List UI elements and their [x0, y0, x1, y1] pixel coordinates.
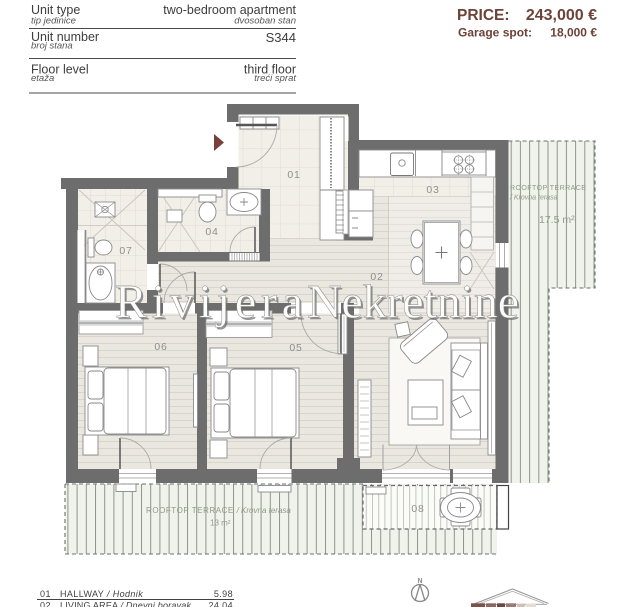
svg-text:Rivijera: Rivijera	[115, 276, 303, 329]
svg-text:02: 02	[40, 601, 51, 607]
svg-text:01: 01	[287, 169, 300, 181]
svg-text:06: 06	[154, 341, 167, 353]
svg-text:PRICE:: PRICE:	[457, 7, 510, 24]
svg-text:13 m²: 13 m²	[210, 519, 231, 528]
svg-text:ROOFTOP TERRACE / Krovna teras: ROOFTOP TERRACE / Krovna terasa	[146, 506, 291, 515]
svg-text:treći sprat: treći sprat	[254, 73, 296, 84]
svg-text:ROOFTOP TERRACE: ROOFTOP TERRACE	[510, 185, 586, 192]
svg-text:N: N	[417, 578, 422, 585]
svg-text:broj stana: broj stana	[31, 41, 73, 52]
svg-text:08: 08	[411, 503, 424, 515]
svg-text:243,000 €: 243,000 €	[526, 7, 597, 24]
svg-text:5.98: 5.98	[214, 589, 233, 599]
svg-text:17.5 m²: 17.5 m²	[539, 214, 575, 226]
svg-text:24.04: 24.04	[208, 601, 233, 607]
svg-text:etaža: etaža	[31, 73, 54, 84]
svg-text:dvosoban stan: dvosoban stan	[234, 16, 296, 27]
svg-text:S344: S344	[266, 30, 296, 45]
svg-text:tip jedinice: tip jedinice	[31, 16, 76, 27]
svg-text:/ Krovna terasa: / Krovna terasa	[509, 195, 558, 202]
svg-text:LIVING AREA / Dnevni boravak: LIVING AREA / Dnevni boravak	[60, 601, 191, 607]
svg-text:05: 05	[289, 342, 302, 354]
svg-text:Nekretnine: Nekretnine	[307, 276, 519, 329]
svg-text:04: 04	[205, 226, 218, 238]
svg-text:01: 01	[40, 589, 51, 599]
svg-text:07: 07	[119, 245, 132, 257]
svg-text:HALLWAY / Hodnik: HALLWAY / Hodnik	[60, 589, 143, 599]
svg-text:Garage spot:: Garage spot:	[458, 26, 532, 40]
svg-text:03: 03	[426, 184, 439, 196]
svg-text:18,000 €: 18,000 €	[550, 26, 597, 40]
